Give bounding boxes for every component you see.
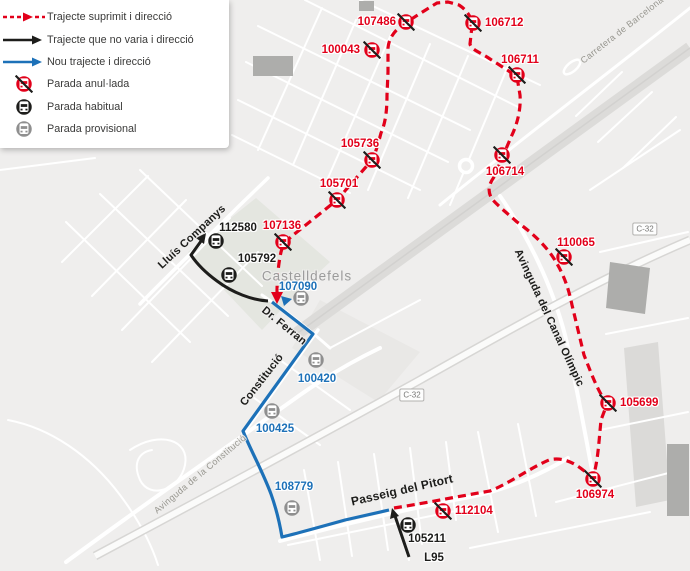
stop-label-100425: 100425 [256,423,294,435]
stop-100425 [263,402,281,420]
cancelled-stop-bus-icon [508,66,526,84]
legend-item-route-removed: Trajecte suprimit i direcció [0,6,229,28]
regular-stop-icon [0,98,47,116]
cancelled-stop-bus-icon [274,233,292,251]
route-removed-sample-icon [0,10,47,24]
stop-106711 [508,66,526,84]
legend-item-stop-provisional: Parada provisional [0,118,229,140]
cancelled-stop-bus-icon [15,75,33,93]
stop-label-106714: 106714 [486,166,524,178]
legend-item-route-unchanged: Trajecte que no varia i direcció [0,28,229,50]
stop-label-105701: 105701 [320,178,358,190]
route-new-sample-icon [0,55,47,69]
legend-label: Nou trajecte i direcció [47,56,151,68]
map-legend: Trajecte suprimit i direcció Trajecte qu… [0,0,229,148]
stop-107486 [397,13,415,31]
cancelled-stop-icon [0,75,47,93]
stop-112104 [434,502,452,520]
bus-route-change-map: Trajecte suprimit i direcció Trajecte qu… [0,0,690,571]
stop-label-106712: 106712 [485,17,523,29]
cancelled-stop-bus-icon [464,14,482,32]
stop-100043 [363,41,381,59]
provisional-stop-bus-icon [283,499,301,517]
stop-105701 [328,191,346,209]
stop-label-107090: 107090 [279,281,317,293]
legend-item-route-new: Nou trajecte i direcció [0,51,229,73]
road-shield-c-32: C-32 [399,389,424,402]
stop-label-106711: 106711 [501,54,539,66]
road-shield-c-32: C-32 [632,223,657,236]
legend-label: Parada provisional [47,123,136,135]
stop-label-105792: 105792 [238,253,276,265]
stop-label-105736: 105736 [341,138,379,150]
cancelled-stop-bus-icon [363,151,381,169]
cancelled-stop-bus-icon [493,146,511,164]
stop-112580 [207,232,225,250]
regular-stop-bus-icon [399,516,417,534]
provisional-stop-bus-icon [307,351,325,369]
legend-item-stop-regular: Parada habitual [0,96,229,118]
legend-label: Trajecte suprimit i direcció [47,11,172,23]
stop-label-100420: 100420 [298,373,336,385]
cancelled-stop-bus-icon [328,191,346,209]
stop-100420 [307,351,325,369]
stop-label-112104: 112104 [455,505,493,517]
stop-106974 [584,470,602,488]
provisional-stop-bus-icon [263,402,281,420]
cancelled-stop-bus-icon [584,470,602,488]
legend-item-stop-cancelled: Parada anul·lada [0,73,229,95]
line-label-l95: L95 [424,552,444,564]
stop-label-110065: 110065 [557,237,595,249]
regular-stop-bus-icon [15,98,33,116]
route-unchanged-sample-icon [0,33,47,47]
cancelled-stop-bus-icon [599,394,617,412]
regular-stop-bus-icon [220,266,238,284]
stop-label-108779: 108779 [275,481,313,493]
roundabout [460,160,473,173]
stop-106712 [464,14,482,32]
stop-108779 [283,499,301,517]
stop-label-107136: 107136 [263,220,301,232]
legend-label: Trajecte que no varia i direcció [47,34,194,46]
stop-106714 [493,146,511,164]
provisional-stop-bus-icon [15,120,33,138]
stop-label-105699: 105699 [620,397,658,409]
stop-105736 [363,151,381,169]
cancelled-stop-bus-icon [434,502,452,520]
cancelled-stop-bus-icon [555,248,573,266]
stop-105792 [220,266,238,284]
stop-107136 [274,233,292,251]
provisional-stop-icon [0,120,47,138]
stop-label-105211: 105211 [408,533,446,545]
cancelled-stop-bus-icon [363,41,381,59]
cancelled-stop-bus-icon [397,13,415,31]
stop-105699 [599,394,617,412]
stop-label-106974: 106974 [576,489,614,501]
legend-label: Parada anul·lada [47,78,129,90]
stop-label-100043: 100043 [322,44,360,56]
stop-label-112580: 112580 [219,222,257,234]
legend-label: Parada habitual [47,101,123,113]
regular-stop-bus-icon [207,232,225,250]
stop-105211 [399,516,417,534]
stop-110065 [555,248,573,266]
stop-label-107486: 107486 [358,16,396,28]
